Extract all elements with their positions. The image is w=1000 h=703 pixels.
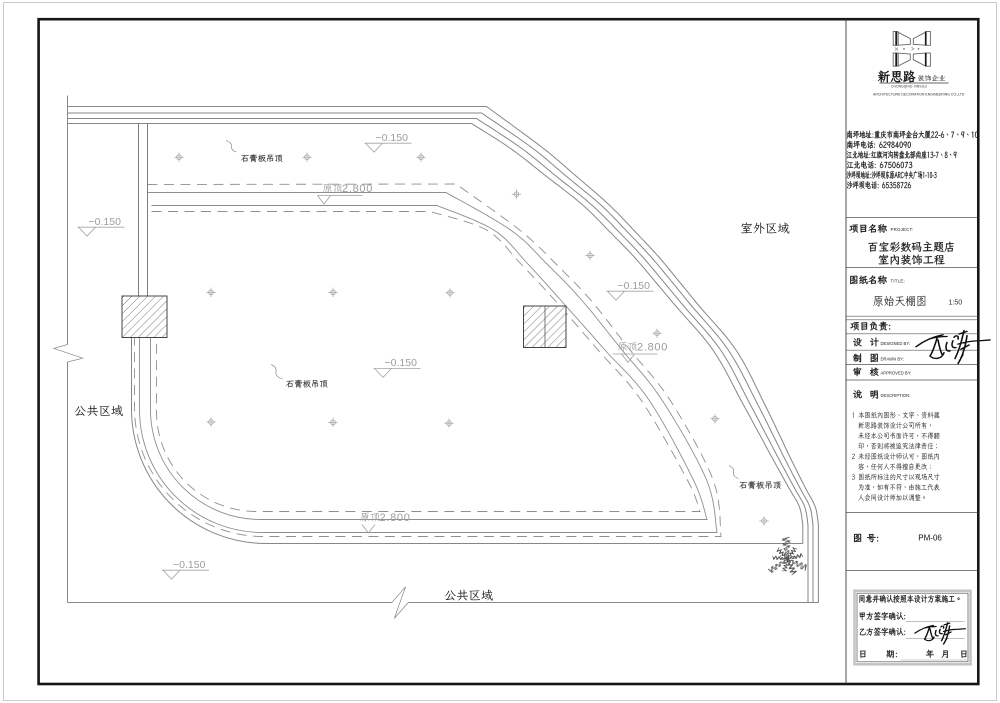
svg-text:2.800: 2.800 (637, 342, 668, 354)
svg-text:2.800: 2.800 (380, 512, 411, 524)
svg-text:DRAWN BY:: DRAWN BY: (881, 357, 904, 362)
svg-text:DESCRIPTION:: DESCRIPTION: (881, 393, 911, 398)
svg-text:ARCHITECTURE DECORATION ENGINE: ARCHITECTURE DECORATION ENGINEERING CO.,… (873, 92, 965, 96)
svg-text:1:50: 1:50 (949, 299, 963, 306)
svg-text:−0.150: −0.150 (618, 280, 651, 292)
svg-text:APPROVED BY:: APPROVED BY: (881, 371, 912, 376)
svg-text:−0.150: −0.150 (385, 357, 418, 369)
svg-text:CHONGQING XINSILU: CHONGQING XINSILU (891, 85, 928, 89)
svg-text:−0.150: −0.150 (89, 216, 122, 228)
svg-text:PROJECT:: PROJECT: (891, 227, 914, 232)
svg-text:TITLE:: TITLE: (891, 279, 905, 284)
svg-text:−0.150: −0.150 (376, 132, 409, 144)
svg-text:−0.150: −0.150 (173, 559, 206, 571)
svg-text:PM-06: PM-06 (918, 534, 942, 543)
svg-text:DESIGNED BY:: DESIGNED BY: (881, 341, 911, 346)
svg-text:2.800: 2.800 (342, 183, 373, 195)
